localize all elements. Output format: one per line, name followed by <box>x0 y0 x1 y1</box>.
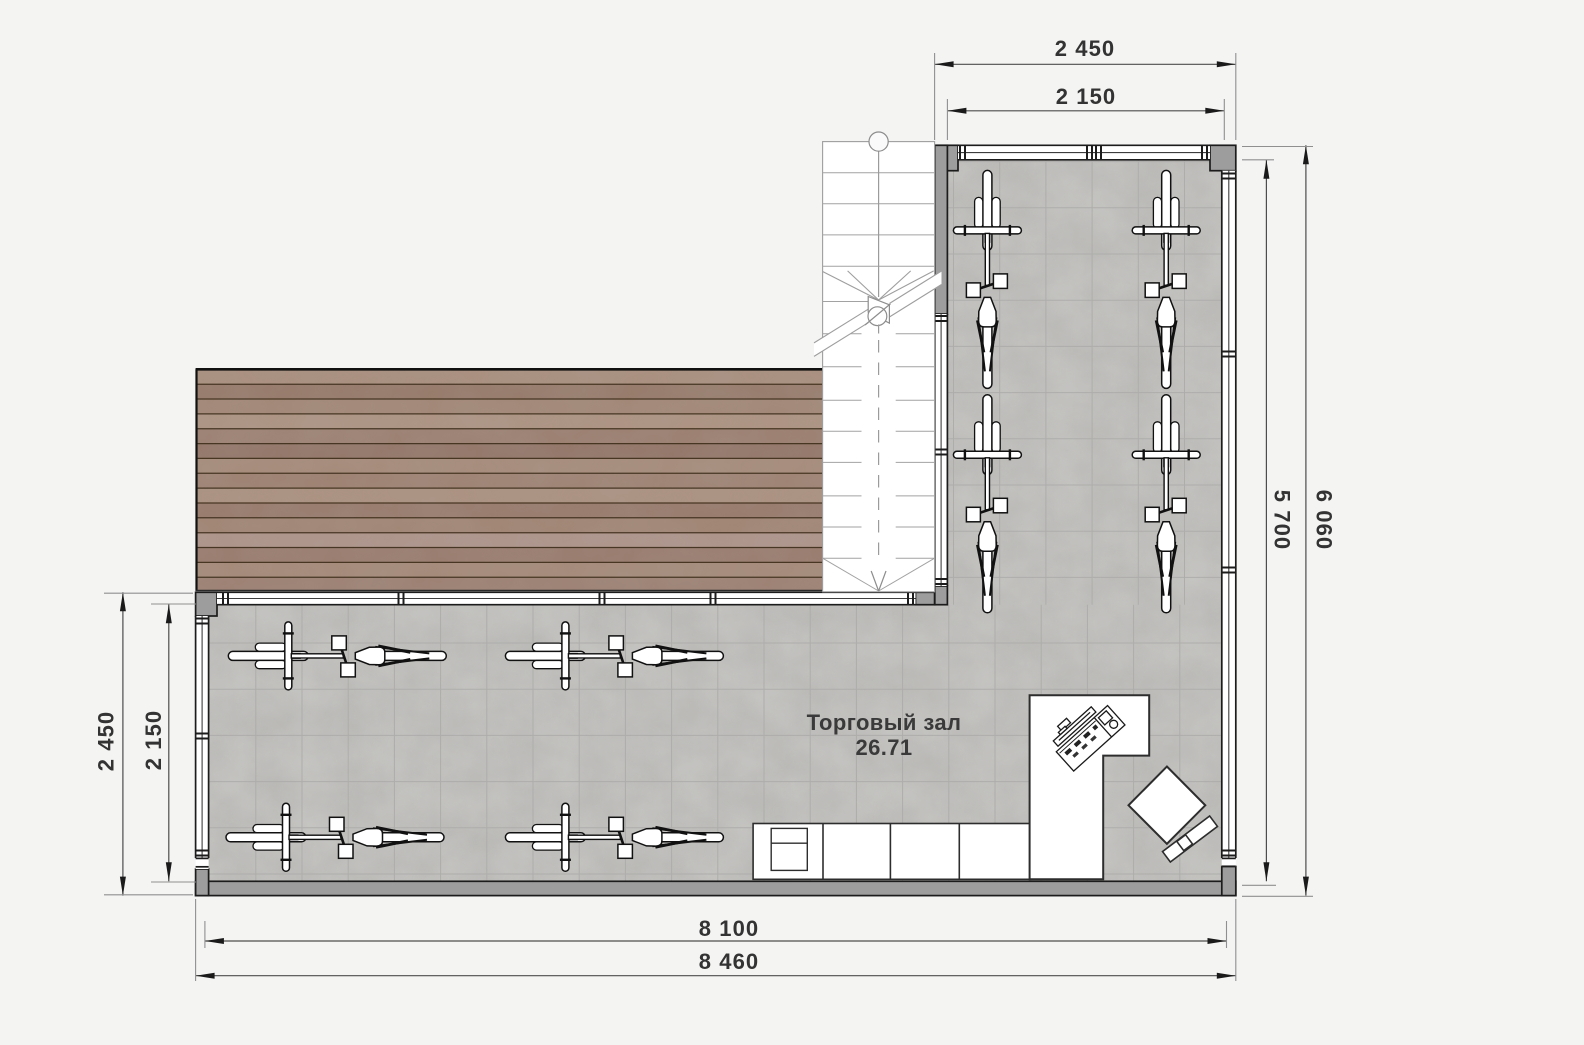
svg-text:2 150: 2 150 <box>1056 84 1117 109</box>
svg-text:8 460: 8 460 <box>699 949 760 974</box>
svg-text:5 700: 5 700 <box>1270 490 1295 551</box>
svg-text:2 450: 2 450 <box>1055 36 1116 61</box>
svg-text:Торговый зал: Торговый зал <box>807 710 962 735</box>
svg-text:2 450: 2 450 <box>94 711 119 772</box>
svg-text:2 150: 2 150 <box>141 710 166 771</box>
svg-text:6 060: 6 060 <box>1312 490 1337 551</box>
svg-text:26.71: 26.71 <box>855 735 912 760</box>
svg-text:8 100: 8 100 <box>699 916 760 941</box>
